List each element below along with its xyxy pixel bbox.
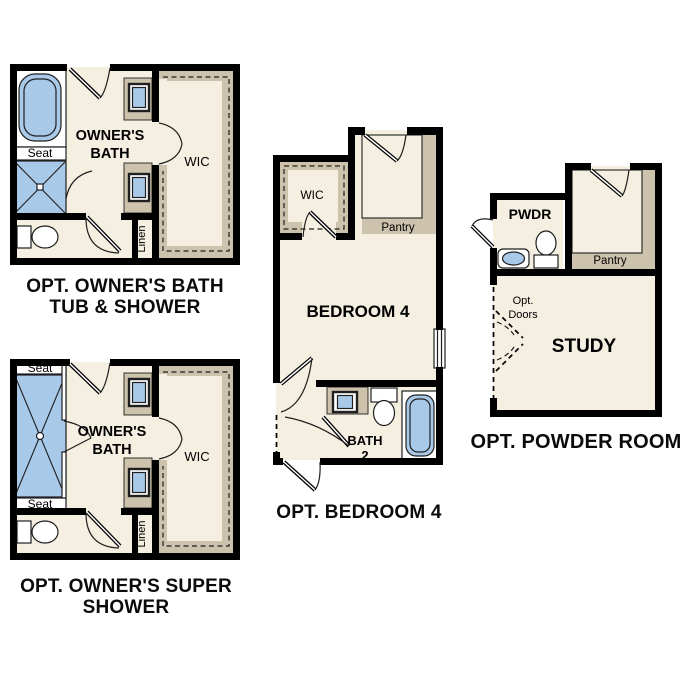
room-label-owners-bath-1: OWNER'S <box>76 128 145 144</box>
label-pantry: Pantry <box>593 255 626 267</box>
bath2-vanity-sink <box>327 387 368 414</box>
label-wic: WIC <box>300 188 324 202</box>
room-label-bath2-1: BATH <box>347 433 382 448</box>
bath2-toilet <box>371 388 397 426</box>
caption-owners-bath: OPT. OWNER'S BATH TUB & SHOWER <box>0 277 250 319</box>
caption-line: OPT. BEDROOM 4 <box>271 503 447 524</box>
room-label-study: STUDY <box>552 336 617 357</box>
label-seat-bottom: Seat <box>28 497 53 511</box>
bath2-tub <box>402 391 438 460</box>
plan-owners-super-shower: OWNER'S BATH WIC Seat Seat Linen <box>10 359 240 560</box>
plan-bedroom-4: BEDROOM 4 WIC Pantry BATH 2 <box>273 127 445 490</box>
toilet <box>17 226 58 248</box>
super-shower <box>14 375 66 497</box>
shower-drain <box>37 433 44 440</box>
vanity-sink-top <box>124 78 152 120</box>
room-label-owners-bath-1: OWNER'S <box>78 424 147 440</box>
room-label-bath2-2: 2 <box>361 448 368 463</box>
label-opt-doors-1: Opt. <box>513 295 534 307</box>
vanity-sink-bottom <box>124 458 152 508</box>
caption-line: OPT. POWDER ROOM <box>462 431 687 453</box>
room-label-pwdr: PWDR <box>509 206 552 222</box>
door-pwdr <box>472 219 493 247</box>
floorplan-sheet: OWNER'S BATH WIC Seat Linen <box>0 0 687 687</box>
room-label-owners-bath-2: BATH <box>92 442 131 458</box>
label-seat: Seat <box>28 146 53 160</box>
plan-powder-room: PWDR Pantry STUDY Opt. Doors <box>472 163 662 417</box>
vanity-sink-bottom <box>124 163 152 213</box>
label-linen: Linen <box>136 226 148 253</box>
plan-owners-bath-tub-shower: OWNER'S BATH WIC Seat Linen <box>10 64 240 265</box>
caption-super-shower: OPT. OWNER'S SUPER SHOWER <box>0 577 252 619</box>
vanity-sink-top <box>124 373 152 415</box>
caption-line: SHOWER <box>0 598 252 619</box>
room-label-bedroom4: BEDROOM 4 <box>307 302 411 321</box>
door-hall <box>284 462 320 490</box>
caption-line: OPT. OWNER'S BATH <box>0 277 250 298</box>
shower-drain <box>37 184 43 190</box>
label-pantry: Pantry <box>381 222 414 234</box>
caption-line: OPT. OWNER'S SUPER <box>0 577 252 598</box>
room-label-owners-bath-2: BATH <box>90 146 129 162</box>
bathtub <box>14 69 66 147</box>
toilet <box>534 231 558 268</box>
window <box>434 329 445 368</box>
caption-line: TUB & SHOWER <box>0 298 250 319</box>
toilet <box>17 521 58 543</box>
label-opt-doors-2: Doors <box>508 309 538 321</box>
pantry <box>362 135 436 234</box>
caption-powder-room: OPT. POWDER ROOM <box>462 431 687 453</box>
label-seat-top: Seat <box>28 361 53 375</box>
caption-bedroom4: OPT. BEDROOM 4 <box>271 503 447 524</box>
label-linen: Linen <box>136 521 148 548</box>
label-wic: WIC <box>184 154 209 169</box>
label-wic: WIC <box>184 449 209 464</box>
shower <box>14 161 66 214</box>
pedestal-sink <box>498 249 529 268</box>
